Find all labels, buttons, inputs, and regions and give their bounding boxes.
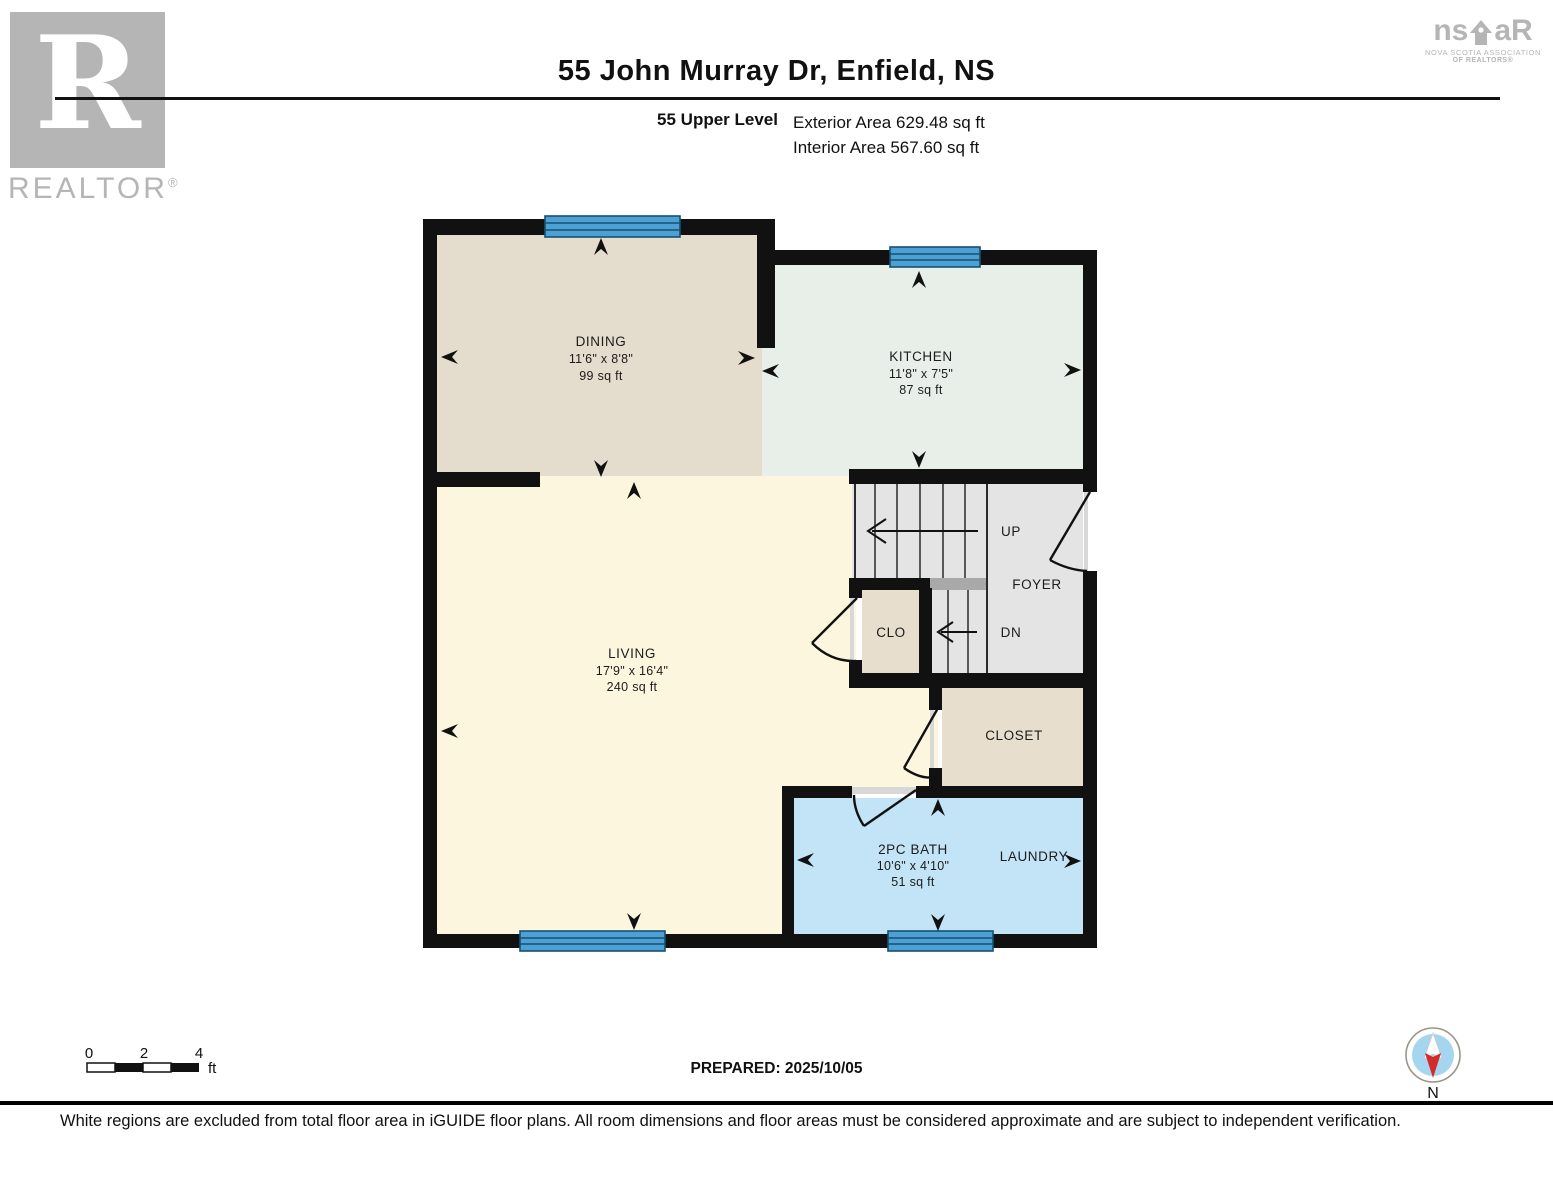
dining-window [545, 216, 680, 237]
clo-label: CLO [876, 625, 906, 640]
svg-text:LIVING: LIVING [608, 646, 656, 661]
compass-north-label: N [1427, 1085, 1439, 1102]
footer-divider [0, 1101, 1553, 1105]
svg-text:87 sq ft: 87 sq ft [899, 383, 943, 397]
laundry-label: LAUNDRY [1000, 849, 1068, 864]
svg-text:99 sq ft: 99 sq ft [579, 369, 623, 383]
svg-text:DINING: DINING [576, 334, 627, 349]
svg-text:51 sq ft: 51 sq ft [891, 875, 935, 889]
up-label: UP [1001, 524, 1021, 539]
dn-label: DN [1001, 625, 1022, 640]
svg-text:10'6" x 4'10": 10'6" x 4'10" [877, 859, 949, 873]
svg-text:KITCHEN: KITCHEN [889, 349, 952, 364]
closet-label: CLOSET [985, 728, 1043, 743]
bath-door-jamb [852, 787, 916, 794]
disclaimer-text: White regions are excluded from total fl… [60, 1112, 1490, 1131]
kitchen-window [890, 247, 980, 267]
svg-text:17'9" x 16'4": 17'9" x 16'4" [596, 664, 668, 678]
compass: N [1404, 1026, 1464, 1102]
living-window [520, 931, 665, 951]
floor-plan: DINING 11'6" x 8'8" 99 sq ft KITCHEN 11'… [0, 0, 1553, 1200]
foyer-label: FOYER [1012, 577, 1062, 592]
bath-window [888, 931, 993, 951]
front-door-jamb [1084, 492, 1088, 571]
svg-text:2PC BATH: 2PC BATH [878, 842, 948, 857]
stair-landing [930, 578, 987, 590]
prepared-date: PREPARED: 2025/10/05 [0, 1060, 1553, 1078]
svg-text:11'6" x 8'8": 11'6" x 8'8" [569, 352, 633, 366]
clo-door-jamb [850, 598, 854, 660]
svg-text:240 sq ft: 240 sq ft [607, 680, 658, 694]
svg-text:11'8" x 7'5": 11'8" x 7'5" [889, 367, 953, 381]
